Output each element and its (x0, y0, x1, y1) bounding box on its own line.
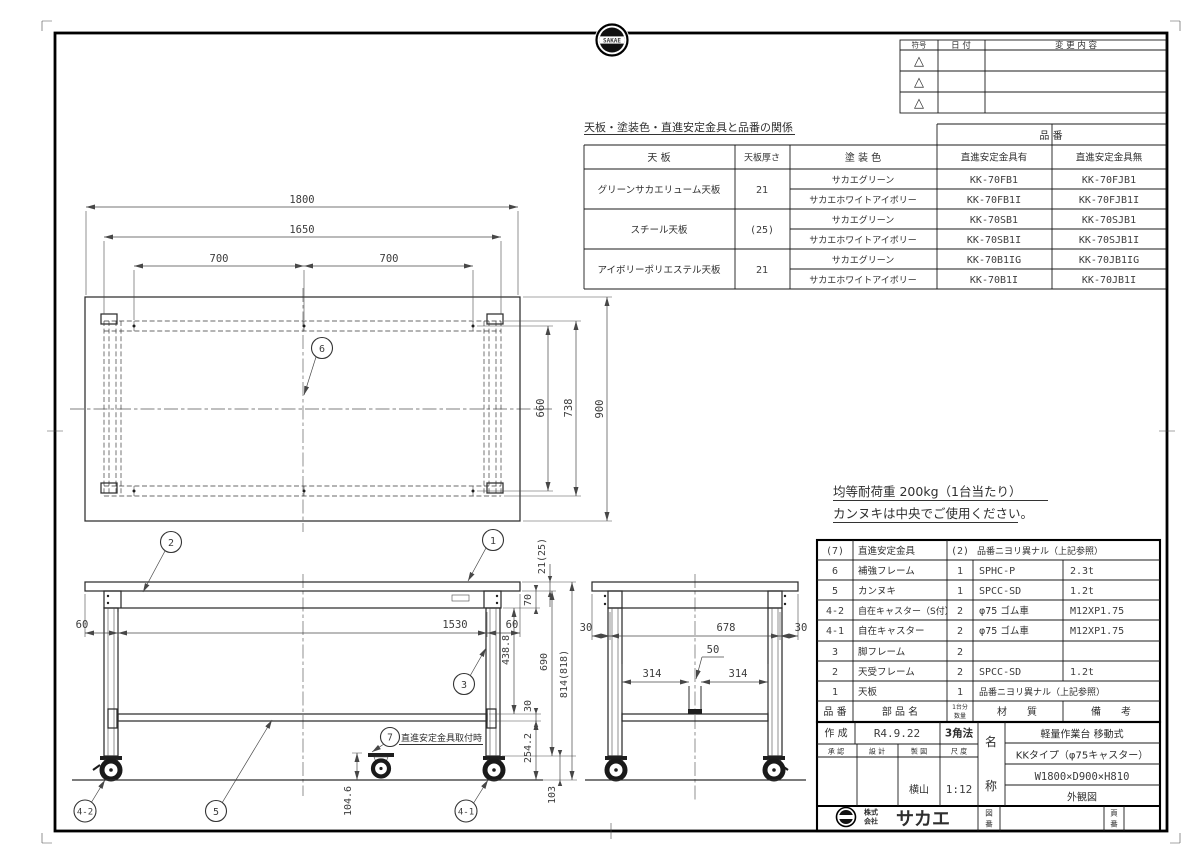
kannuki-hooks-plan (101, 314, 503, 493)
part-material: 品番ニヨリ異ナル（上記参照） (979, 686, 1105, 698)
drawing-kind: 外観図 (1067, 791, 1097, 804)
product-series: KKタイプ（φ75キャスター） (1016, 750, 1148, 762)
part-name: 自在キャスター (858, 625, 925, 637)
dim-caster-pitch-left: 700 (210, 253, 229, 265)
dim-side-span: 678 (717, 622, 736, 634)
load-notes: 均等耐荷重 200kg（1台当たり） カンヌキは中央でご使用ください。 (833, 484, 1048, 523)
part-number: KK-70B1I (970, 275, 1018, 286)
drawing-no-label-top: 図 (985, 809, 993, 818)
dim-inner-width: 1650 (289, 224, 314, 236)
parts-row: 3 脚フレーム 2 (832, 647, 963, 658)
dim-total-height: 814(818) (559, 650, 570, 698)
created-date: R4.9.22 (874, 727, 920, 740)
part-name: 天受フレーム (858, 666, 915, 678)
caster-left-stopper (93, 756, 122, 779)
caster-side-left (605, 756, 627, 779)
company-name: サカエ (896, 809, 950, 830)
relation-header-partno: 品 番 (1039, 130, 1062, 142)
top-plate-name: アイボリーポリエステル天板 (597, 264, 721, 276)
drawing-sheet: SAKAE 符号 日 付 変 更 内 容 △ △ △ 天板・塗装色・直進安定金具… (0, 0, 1200, 849)
relation-header-thickness: 天板厚さ (744, 152, 780, 164)
balloon-1-label: 1 (490, 536, 496, 547)
dim-frame-height: 70 (523, 594, 534, 606)
frame-bolts (107, 595, 498, 604)
caster-right (483, 756, 505, 779)
dim-overall-depth: 900 (594, 400, 606, 419)
approval-label: 承 認 (828, 747, 844, 756)
company-prefix-bottom: 会社 (864, 817, 878, 826)
drafter-name: 横山 (909, 783, 929, 796)
dim-caster-pitch-depth: 660 (535, 399, 547, 418)
revision-marker-icon: △ (914, 96, 924, 111)
parts-row: 2 天受フレーム 2 SPCC-SD 1.2t (832, 666, 1094, 678)
name-label-top: 名 (985, 734, 997, 749)
part-number: KK-70JB1I (1082, 275, 1136, 286)
parts-row: 5 カンヌキ 1 SPCC-SD 1.2t (832, 586, 1094, 597)
paint-color: サカエグリーン (832, 254, 895, 266)
top-plate-name: スチール天板 (630, 224, 688, 236)
front-view: 60 1530 60 21(25) 70 438.8 690 30 254.2 … (72, 530, 577, 823)
draft-label: 製 図 (911, 747, 927, 756)
scale-value: 1:12 (946, 783, 973, 796)
part-name: 補強フレーム (858, 565, 915, 577)
relation-header-with: 直進安定金具有 (961, 152, 1028, 164)
balloon-7-label: 7 (387, 733, 393, 744)
paint-color: サカエホワイトアイボリー (809, 195, 917, 206)
product-type: 軽量作業台 移動式 (1040, 728, 1123, 741)
stabilizer-note: 直進安定金具取付時 (401, 732, 482, 744)
relation-header-paint: 塗 装 色 (845, 151, 881, 164)
dim-103: 103 (547, 786, 558, 804)
paint-color: サカエグリーン (832, 174, 895, 186)
name-label-bottom: 称 (985, 779, 997, 793)
dim-kannuki-width: 50 (707, 644, 720, 656)
balloon-4-2-label: 4-2 (77, 808, 93, 818)
part-remarks: 2.3t (1070, 566, 1094, 577)
created-label: 作 成 (824, 728, 847, 740)
relation-table-title: 天板・塗装色・直進安定金具と品番の関係 (584, 120, 793, 134)
dim-caster-pitch-right: 700 (380, 253, 399, 265)
dim-leg-span: 1530 (442, 619, 467, 631)
part-name: 直進安定金具 (858, 545, 916, 557)
parts-row: 6 補強フレーム 1 SPHC-P 2.3t (832, 565, 1094, 577)
part-number: KK-70B1IG (967, 255, 1021, 266)
paint-color: サカエホワイトアイボリー (809, 235, 917, 246)
part-number: KK-70FJB1I (1079, 195, 1139, 206)
balloon-6-label: 6 (319, 344, 325, 355)
revision-col-symbol: 符号 (912, 40, 927, 50)
balloon-2-label: 2 (168, 538, 174, 549)
part-qty: 2 (957, 626, 963, 637)
balloon-4-1-label: 4-1 (458, 808, 474, 818)
top-support-frame (104, 591, 501, 608)
top-plate-thickness: (25) (750, 225, 774, 236)
parts-header-material: 材 質 (997, 705, 1037, 718)
drawing-no-label-bottom: 番 (985, 819, 993, 829)
paint-color: サカエホワイトアイボリー (809, 275, 917, 286)
parts-header-qty1: 1台分 (952, 703, 968, 711)
revision-col-change: 変 更 内 容 (1055, 40, 1098, 51)
kannuki-receivers (108, 709, 496, 728)
load-note: 均等耐荷重 200kg（1台当たり） (833, 484, 1021, 499)
design-label: 設 計 (869, 747, 885, 756)
projection-method: 3角法 (945, 727, 974, 740)
revision-marker-icon: △ (914, 54, 924, 69)
company-logo: 株式 会社 サカエ (837, 808, 951, 831)
part-material: φ75 ゴム車 (979, 625, 1029, 637)
part-qty: 2 (957, 606, 963, 617)
dim-overhang-left: 60 (76, 619, 89, 631)
parts-row: 4-1 自在キャスター 2 φ75 ゴム車 M12XP1.75 (826, 625, 1124, 637)
parts-header-remarks: 備 考 (1091, 705, 1131, 718)
table-top-front (85, 582, 520, 591)
dim-side-pitch-left: 314 (643, 668, 662, 680)
part-material: SPCC-SD (979, 586, 1021, 597)
dim-690: 690 (539, 653, 550, 671)
balloon-1: 1 (468, 530, 504, 582)
title-block: 作 成 R4.9.22 3角法 承 認 設 計 製 図 尺 度 横山 1:12 … (817, 722, 1160, 831)
top-view: 1800 1650 700 700 660 738 900 6 (70, 194, 612, 532)
part-remarks: M12XP1.75 (1070, 626, 1124, 637)
part-name: 脚フレーム (858, 647, 905, 658)
balloon-3: 3 (454, 648, 487, 695)
top-plate-thickness: 21 (756, 185, 768, 196)
part-no: 4-1 (826, 626, 844, 637)
badge-text: SAKAE (603, 37, 621, 44)
balloon-3-label: 3 (461, 680, 467, 691)
parts-header-qty2: 数量 (954, 712, 966, 720)
part-material: φ75 ゴム車 (979, 605, 1029, 617)
part-qty: 1 (957, 687, 963, 698)
top-plate-thickness: 21 (756, 265, 768, 276)
part-qty: 2 (957, 667, 963, 678)
dim-stabilizer-height: 104.6 (343, 786, 354, 816)
part-number: KK-70SJB1 (1082, 215, 1136, 226)
page-no-label-bottom: 番 (1110, 819, 1118, 829)
dim-frame-depth: 738 (563, 399, 575, 418)
part-no: 6 (832, 566, 838, 577)
part-name: 自在キャスター（S付） (858, 605, 954, 617)
part-no: 1 (832, 687, 838, 698)
scale-label: 尺 度 (951, 747, 967, 756)
side-view: 30 678 30 314 314 50 (580, 574, 808, 800)
dim-side-overhang-right: 30 (795, 622, 808, 634)
part-no: 4-2 (826, 606, 844, 617)
caster-mount-points (133, 325, 475, 493)
revision-col-date: 日 付 (951, 40, 971, 51)
part-remarks: M12XP1.75 (1070, 606, 1124, 617)
part-material: SPCC-SD (979, 667, 1021, 678)
balloon-5-label: 5 (213, 807, 219, 818)
part-qty: (2) (951, 546, 969, 557)
parts-table: 品 番 部 品 名 1台分 数量 材 質 備 考 (7) 直進安定金具 (2) … (817, 540, 1160, 722)
revision-marker-icon: △ (914, 75, 924, 90)
part-remarks: 1.2t (1070, 667, 1094, 678)
part-number: KK-70FB1I (967, 195, 1021, 206)
relation-header-top: 天 板 (647, 151, 670, 164)
parts-header-name: 部 品 名 (882, 705, 918, 718)
part-number: KK-70FJB1 (1082, 175, 1136, 186)
part-no: (7) (826, 546, 844, 557)
relation-header-without: 直進安定金具無 (1076, 152, 1143, 164)
part-qty: 2 (957, 647, 963, 658)
part-material: SPHC-P (979, 566, 1015, 577)
kannuki-bar (118, 714, 487, 721)
nameplate (452, 595, 469, 601)
part-name: 天板 (858, 686, 878, 698)
part-material: 品番ニヨリ異ナル（上記参照） (977, 545, 1103, 557)
dim-overhang-right: 60 (506, 619, 519, 631)
part-qty: 1 (957, 586, 963, 597)
balloon-2: 2 (143, 532, 182, 593)
dim-438: 438.8 (501, 635, 512, 665)
top-plate-name: グリーンサカエリューム天板 (598, 184, 721, 196)
part-no: 2 (832, 667, 838, 678)
page-no-label-top: 頁 (1110, 809, 1118, 818)
caster-side-right-stopper (763, 756, 788, 779)
company-prefix-top: 株式 (864, 808, 878, 817)
kannuki-note: カンヌキは中央でご使用ください。 (833, 506, 1033, 521)
paint-color: サカエグリーン (832, 214, 895, 226)
dim-254: 254.2 (523, 733, 534, 763)
balloon-4-2: 4-2 (74, 780, 105, 822)
parts-row: 4-2 自在キャスター（S付） 2 φ75 ゴム車 M12XP1.75 (826, 605, 1124, 617)
dim-side-overhang-left: 30 (580, 622, 593, 634)
part-number: KK-70FB1 (970, 175, 1018, 186)
sheet-frame (42, 21, 1180, 843)
part-name: カンヌキ (858, 586, 896, 597)
part-remarks: 1.2t (1070, 586, 1094, 597)
parts-row: 1 天板 1 品番ニヨリ異ナル（上記参照） (832, 686, 1105, 698)
relation-table: 天板・塗装色・直進安定金具と品番の関係 品 番 天 板 天板厚さ 塗 装 色 直… (584, 120, 1166, 289)
part-number: KK-70SJB1I (1079, 235, 1139, 246)
part-no: 5 (832, 586, 838, 597)
stabilizer-caster (368, 753, 394, 777)
part-qty: 1 (957, 566, 963, 577)
balloon-6: 6 (304, 338, 333, 396)
sakae-logo-badge: SAKAE (595, 23, 630, 58)
part-number: KK-70JB1IG (1079, 255, 1139, 266)
balloon-7: 7 直進安定金具取付時 (372, 728, 483, 753)
balloon-4-1: 4-1 (455, 780, 488, 822)
part-number: KK-70SB1 (970, 215, 1018, 226)
product-size: W1800×D900×H810 (1035, 771, 1130, 783)
parts-row: (7) 直進安定金具 (2) 品番ニヨリ異ナル（上記参照） (826, 545, 1103, 557)
dim-30: 30 (523, 700, 534, 712)
dim-overall-width: 1800 (289, 194, 314, 206)
revision-table: 符号 日 付 変 更 内 容 △ △ △ (900, 40, 1166, 114)
balloon-5: 5 (206, 720, 273, 822)
dim-side-pitch-right: 314 (729, 668, 748, 680)
parts-header-no: 品 番 (823, 706, 846, 718)
dim-top-thickness: 21(25) (537, 538, 548, 574)
part-no: 3 (832, 647, 838, 658)
part-number: KK-70SB1I (967, 235, 1021, 246)
